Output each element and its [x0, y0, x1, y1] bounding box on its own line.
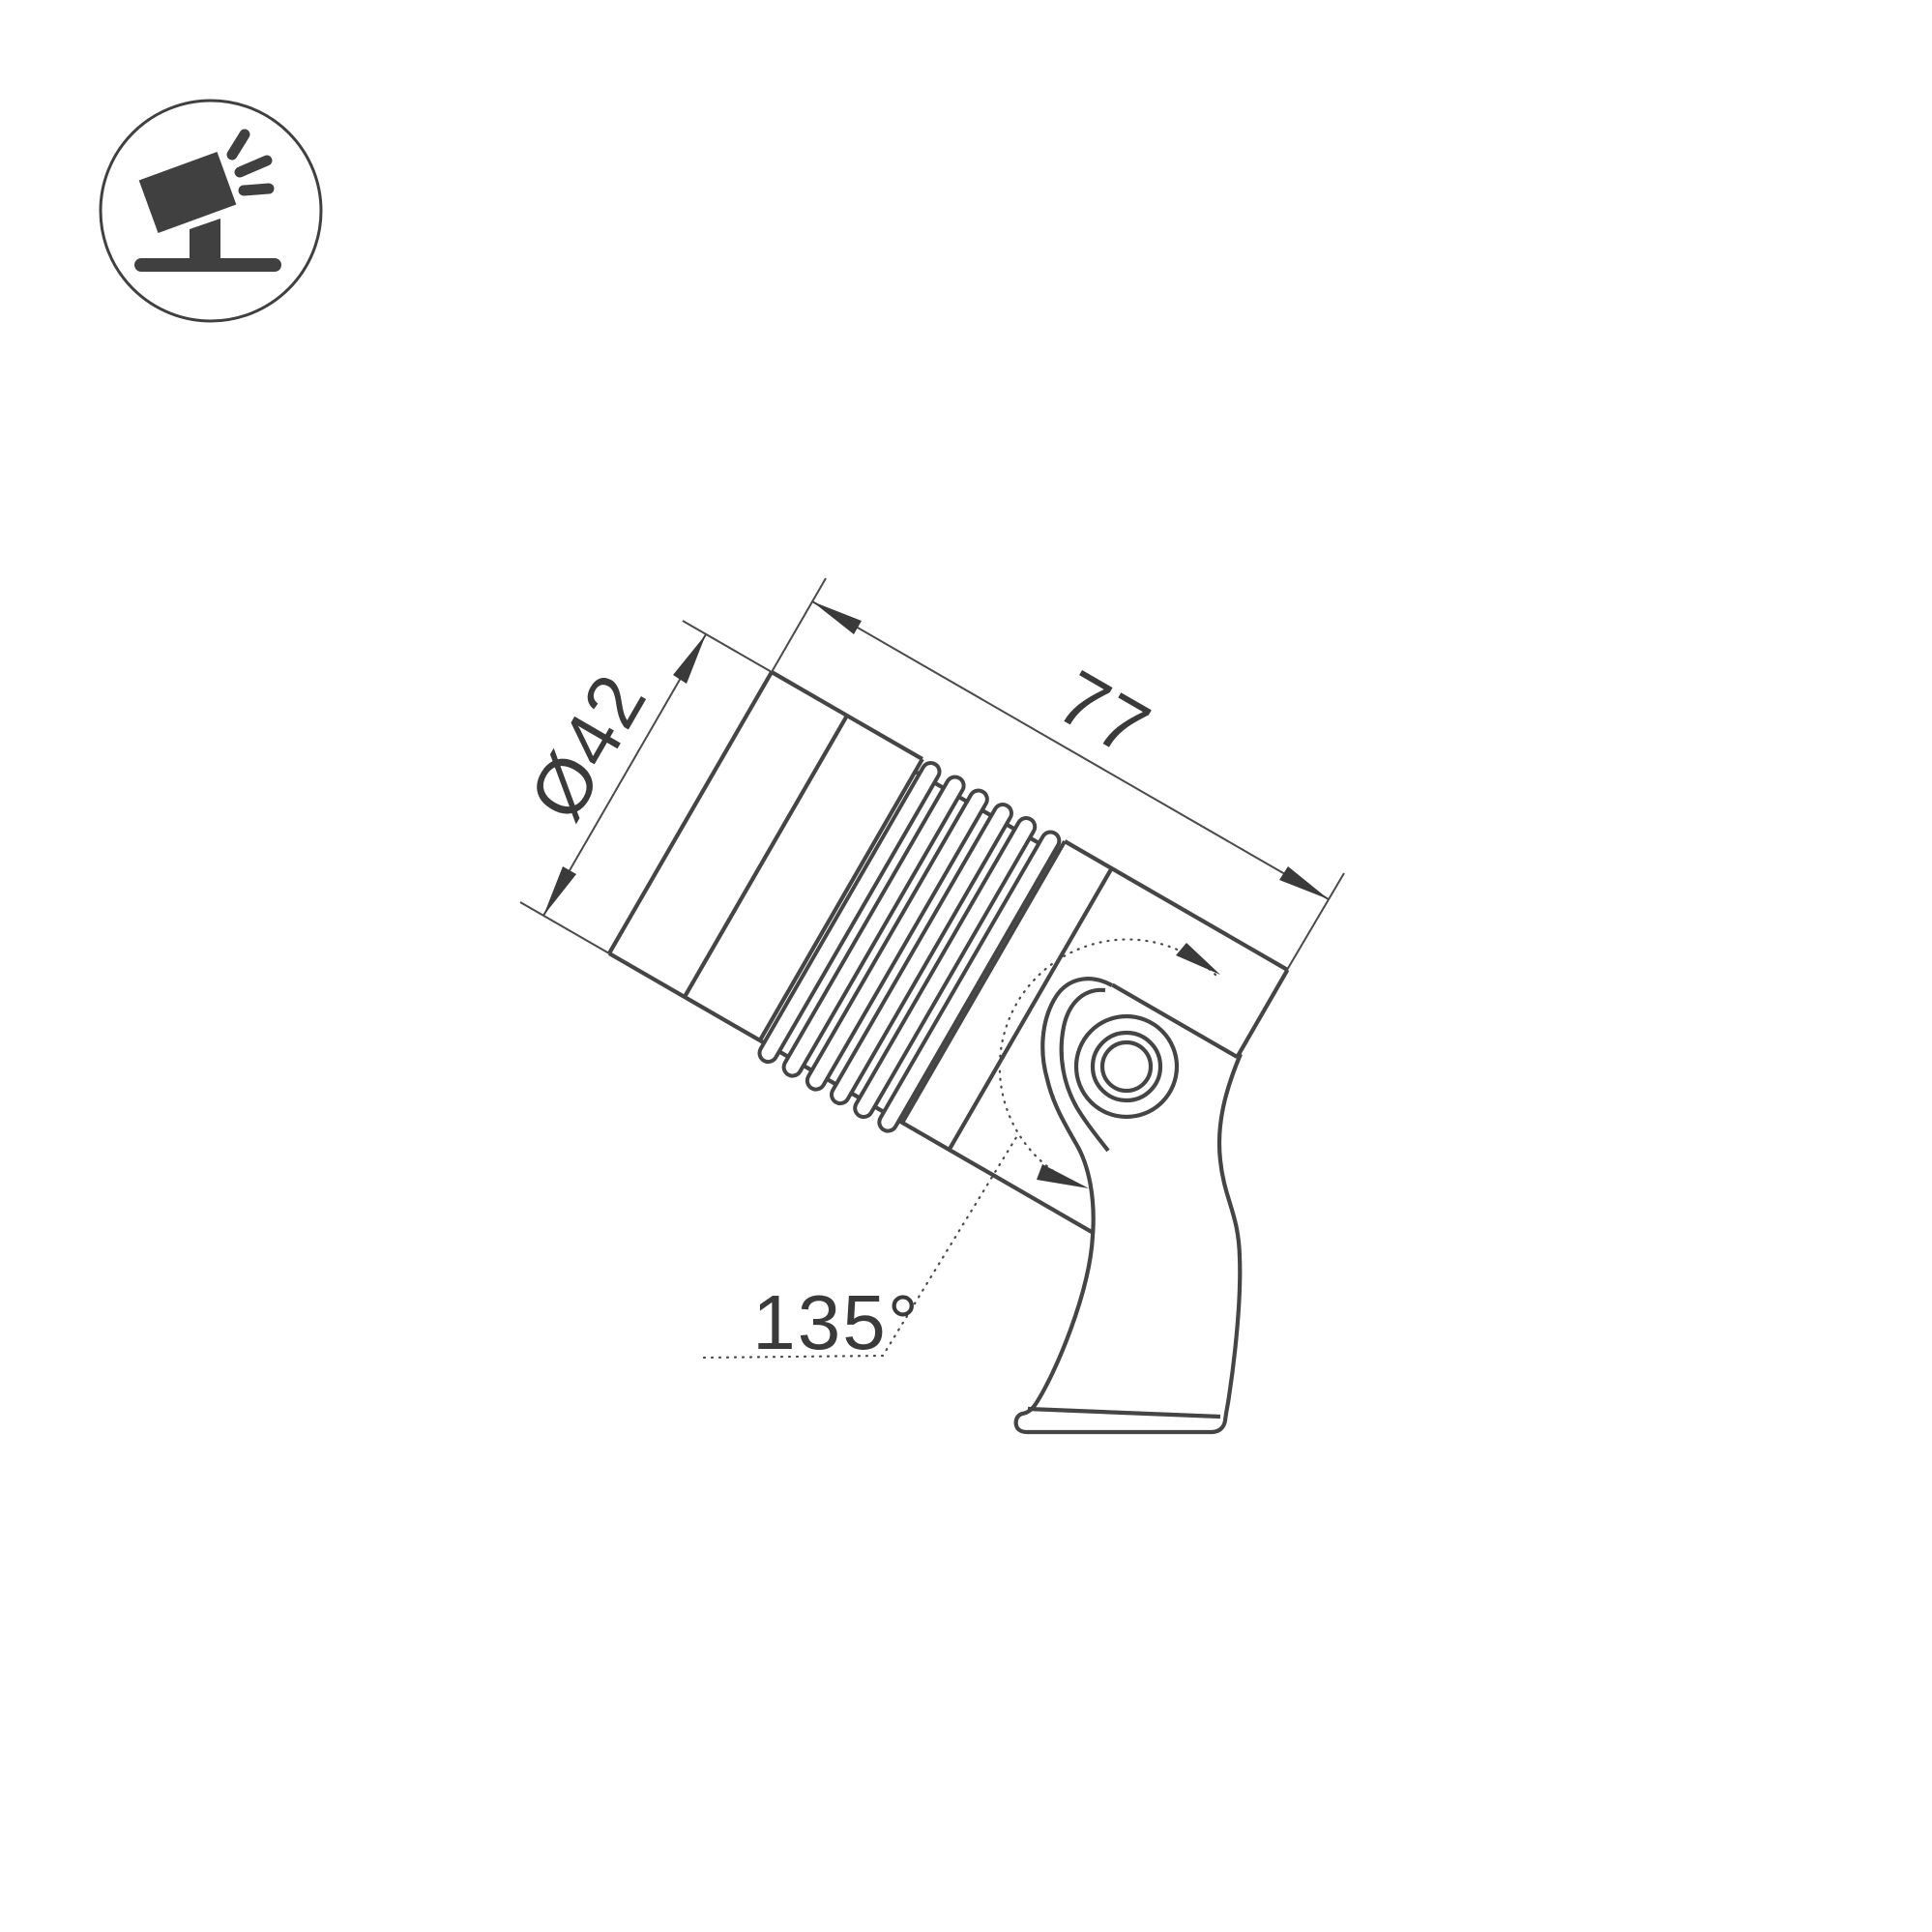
- rotation-arrow: [1176, 943, 1220, 975]
- icon-ground-base: [134, 258, 281, 272]
- dimension-arrow: [812, 601, 862, 634]
- icon-lamp-head: [139, 152, 237, 233]
- witness-line: [772, 578, 826, 672]
- angle-label: 135°: [752, 1279, 920, 1365]
- witness-line: [520, 902, 609, 953]
- witness-line: [683, 621, 772, 672]
- length-label: 77: [1043, 654, 1164, 774]
- dimension-arrow: [543, 866, 576, 916]
- barrel: [601, 670, 1288, 1265]
- spotlight-icon: [101, 101, 321, 321]
- dimension-arrow: [673, 634, 706, 684]
- pivot-screw: [1076, 1016, 1177, 1117]
- dimension-diameter: Ø42: [512, 621, 772, 953]
- dimension-arrow: [1279, 866, 1329, 899]
- drawing-page: Ø42 77 135°: [0, 0, 1932, 1932]
- icon-lamp-post: [190, 219, 220, 260]
- heatsink-fins: [756, 760, 1062, 1134]
- witness-line: [1287, 873, 1344, 970]
- technical-drawing-canvas: Ø42 77 135°: [0, 0, 1932, 1932]
- base-plate-edge: [1028, 1409, 1220, 1417]
- icon-light-rays: [232, 134, 269, 190]
- luminaire-drawing: Ø42 77 135°: [512, 578, 1344, 1432]
- rotation-arrow: [1037, 1164, 1089, 1188]
